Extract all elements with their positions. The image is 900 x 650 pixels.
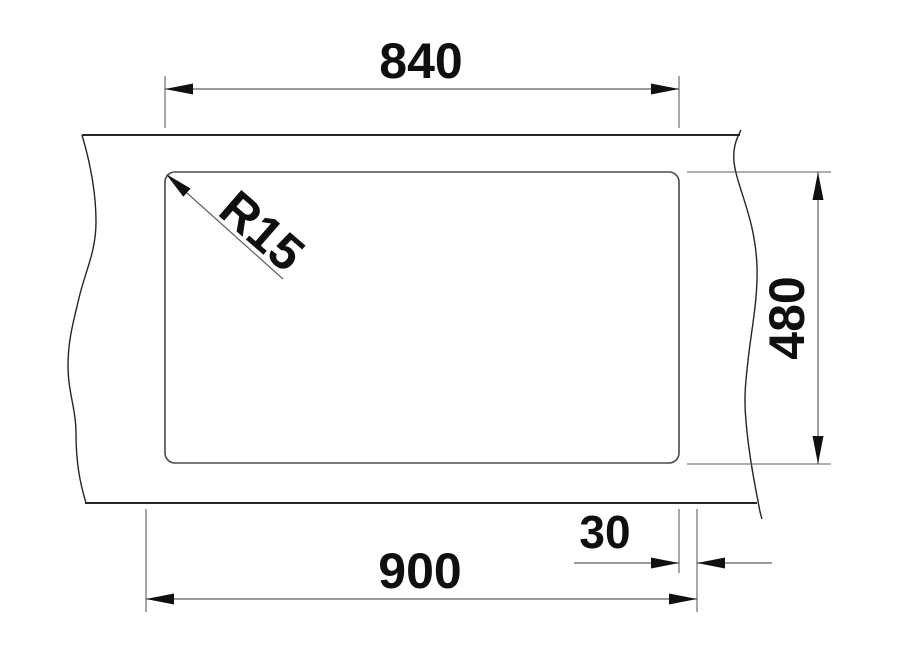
dim-label-900: 900 [378,546,461,596]
break-line-left [68,135,96,503]
arrowhead-30-right [697,558,725,569]
break-line-right [734,130,762,519]
dim-label-480: 480 [762,276,812,359]
arrowhead-840-left [165,84,193,95]
arrowhead-480-bottom [813,436,824,464]
technical-drawing: 840 480 900 30 R15 [0,0,900,650]
arrowhead-900-left [146,594,174,605]
arrowhead-30-left [651,558,679,569]
dim-label-840: 840 [379,36,462,86]
arrowhead-480-top [813,172,824,200]
dim-label-30: 30 [579,509,630,555]
arrowhead-840-right [651,84,679,95]
arrowhead-900-right [669,594,697,605]
